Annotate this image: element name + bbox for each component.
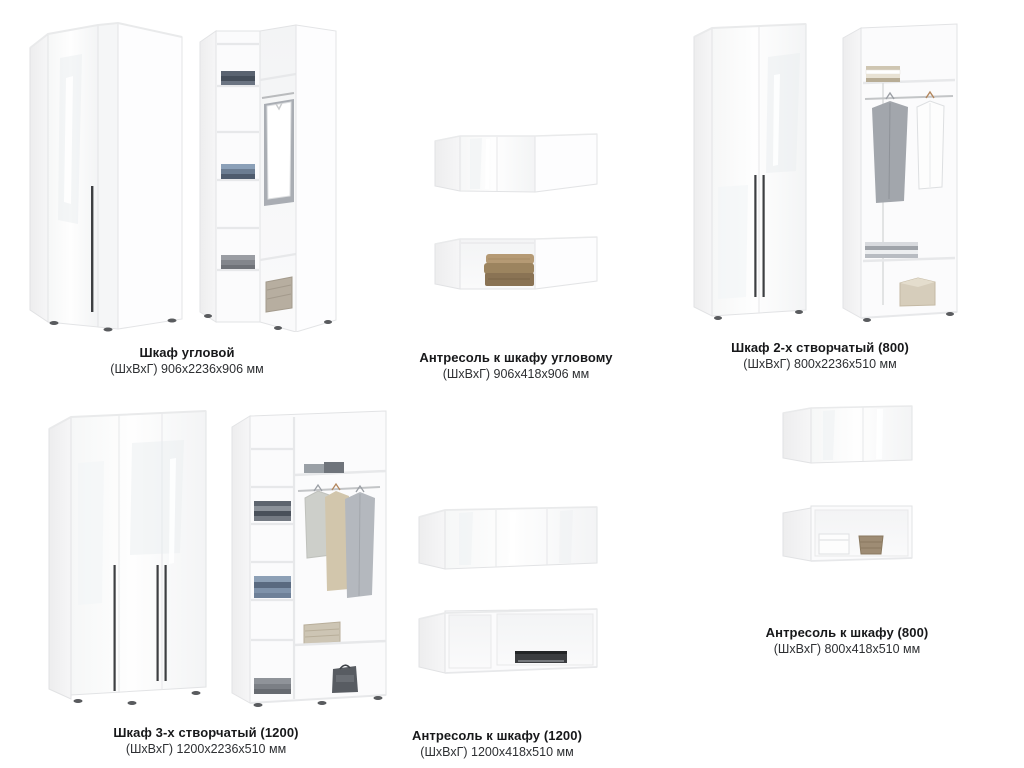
foot [104,328,113,332]
door-handle [91,186,93,312]
wardrobe-3-door-closed-image [44,403,214,709]
product-title: Антресоль к шкафу угловому [391,349,641,366]
wardrobe-3-door-open-image [228,403,396,709]
product-dimensions: (ШхВхГ) 800х2236х510 мм [695,356,945,372]
door-highlight [876,409,883,459]
product-label-corner-antresol: Антресоль к шкафу угловому (ШхВхГ) 906х4… [391,349,641,382]
product-label-antresol-800: Антресоль к шкафу (800) (ШхВхГ) 800х418х… [722,624,972,657]
corner-face [98,23,118,329]
corner-antresol-closed-image [430,133,602,197]
door-reflection [78,461,104,605]
antresol-800-open-image [779,504,916,566]
side-panel [783,408,811,463]
side-panel [783,508,811,561]
side-panel [435,136,460,191]
angled-door [535,134,597,192]
product-title: Шкаф 3-х створчатый (1200) [81,724,331,741]
corner-wardrobe-open-image [196,14,340,332]
product-title: Антресоль к шкафу (800) [722,624,972,641]
corner-wardrobe-closed-image [22,14,190,332]
foot [74,699,83,703]
storage-bag [332,665,358,693]
antresol-800-closed-image [779,404,916,468]
side-panel [200,31,216,322]
door-reflection [130,440,184,555]
side-panel [419,613,445,673]
antresol-1200-closed-image [415,505,601,573]
hanging-clothes [264,99,294,206]
foot [318,701,327,705]
angled-door [535,237,597,289]
foot [324,320,332,324]
foot [192,691,201,695]
wardrobe-2-door-closed-image [688,15,810,330]
foot [168,319,177,323]
product-dimensions: (ШхВхГ) 906х418х906 мм [391,366,641,382]
hanging-shirt-white [917,92,944,189]
foot [274,326,282,330]
right-panel [296,25,336,332]
door-reflection [470,138,482,189]
storage-basket [266,277,292,312]
corner-antresol-open-image [430,236,602,294]
foot [714,316,722,320]
door-handle [763,175,765,297]
door-handle [157,565,159,681]
storage-box-white [819,534,849,554]
foot [204,314,212,318]
foot [50,321,59,325]
hanging-shirt-gray [872,93,908,203]
foot [128,701,137,705]
right-door [118,23,182,329]
product-dimensions: (ШхВхГ) 1200х2236х510 мм [81,741,331,757]
stored-device [515,651,567,663]
storage-basket [304,622,340,644]
side-panel [694,28,712,316]
product-label-wardrobe-2-door: Шкаф 2-х створчатый (800) (ШхВхГ) 800х22… [695,339,945,372]
folded-blanket [484,254,534,286]
foot [374,696,383,700]
storage-box [900,278,935,306]
foot [254,703,263,707]
side-panel [843,28,861,318]
wardrobe-catalog-page: Шкаф угловой (ШхВхГ) 906х2236х906 мм [0,0,1024,768]
foot [946,312,954,316]
door-reflection [559,510,573,563]
product-title: Шкаф 2-х створчатый (800) [695,339,945,356]
side-panel [49,417,71,699]
folded-clothes [866,66,900,82]
side-panel [232,416,250,703]
side-panel [419,510,445,569]
folded-clothes [865,242,918,258]
product-title: Шкаф угловой [62,344,312,361]
side-panel [435,239,460,289]
door-reflection [718,185,748,299]
wardrobe-2-door-open-image [838,15,962,330]
storage-basket [859,536,883,554]
antresol-1200-open-image [415,607,601,677]
product-label-wardrobe-3-door: Шкаф 3-х створчатый (1200) (ШхВхГ) 1200х… [81,724,331,757]
door-reflection [766,53,800,173]
foot [795,310,803,314]
product-label-antresol-1200: Антресоль к шкафу (1200) (ШхВхГ) 1200х41… [372,727,622,760]
door-reflection [459,512,473,565]
product-dimensions: (ШхВхГ) 906х2236х906 мм [62,361,312,377]
product-label-corner-wardrobe: Шкаф угловой (ШхВхГ) 906х2236х906 мм [62,344,312,377]
side-panel [30,34,48,322]
product-dimensions: (ШхВхГ) 1200х418х510 мм [372,744,622,760]
compartment-left [449,615,491,668]
door-handle [754,175,756,297]
foot [863,318,871,322]
door-handle [114,565,116,691]
door-handle [165,565,167,681]
product-dimensions: (ШхВхГ) 800х418х510 мм [722,641,972,657]
door-reflection [823,410,835,460]
door-highlight [509,512,516,564]
product-title: Антресоль к шкафу (1200) [372,727,622,744]
